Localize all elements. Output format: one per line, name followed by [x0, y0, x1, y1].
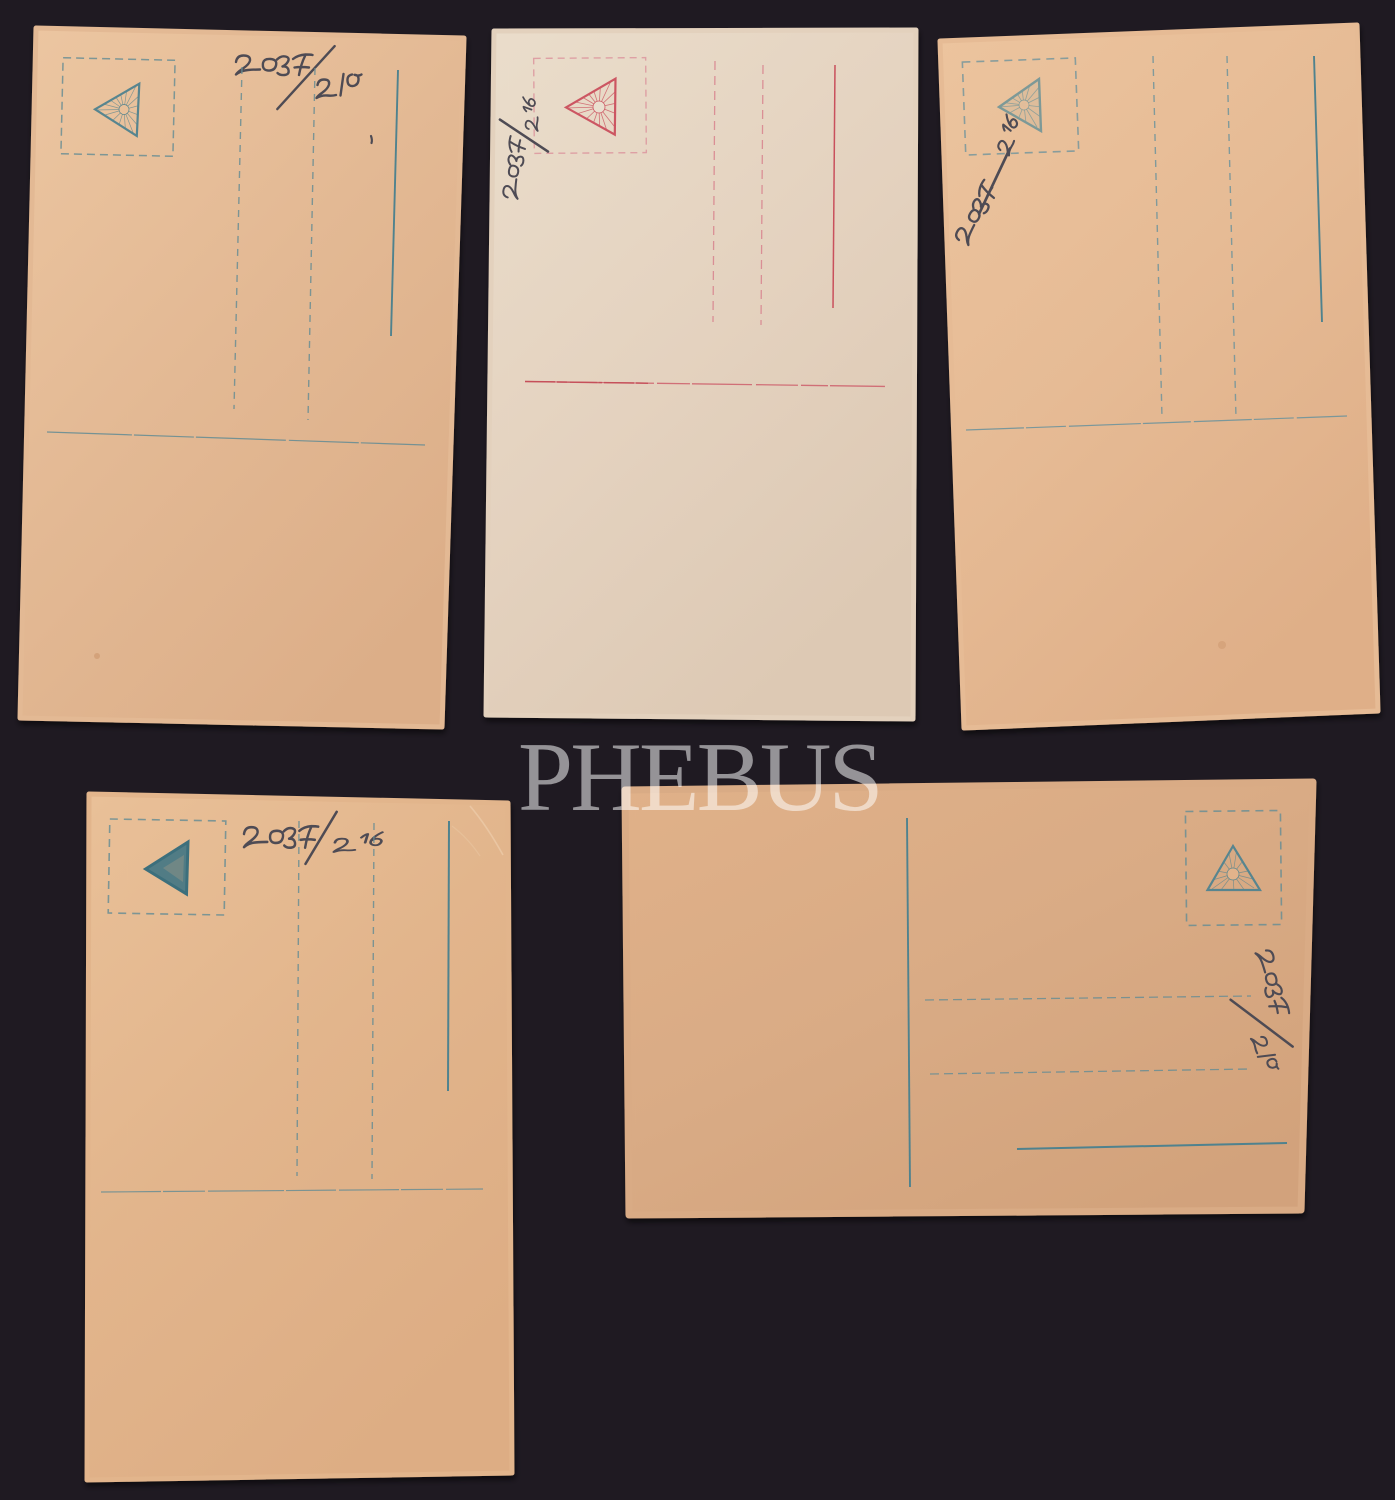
svg-text:PHEBUS: PHEBUS	[518, 723, 881, 832]
